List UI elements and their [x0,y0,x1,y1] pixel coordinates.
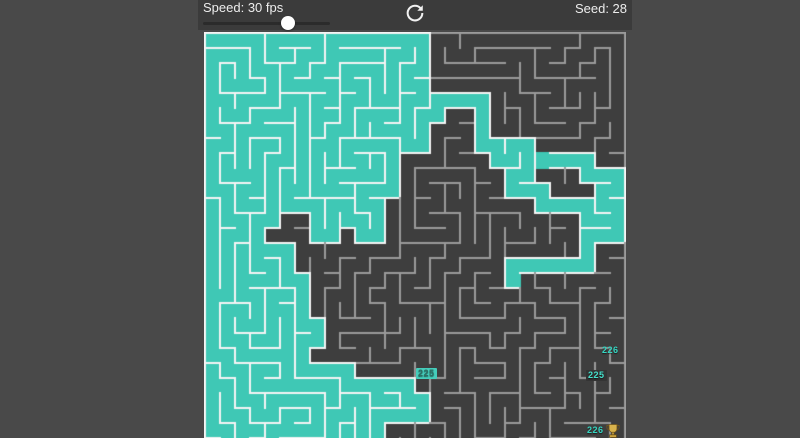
slider-track[interactable] [203,22,330,25]
refresh-button[interactable] [404,2,426,24]
speed-slider[interactable] [203,16,330,30]
distance-label: 226 [585,425,606,436]
distance-label: 226 [600,345,621,356]
seed-label: Seed: 28 [575,1,627,16]
maze-app: Speed: 30 fps Seed: 28 226 225 2 [198,0,632,438]
speed-label: Speed: 30 fps [203,0,343,15]
seed-display: Seed: 28 [487,0,627,18]
trophy-icon [605,423,621,438]
distance-label: 225 [586,370,607,381]
toolbar: Speed: 30 fps Seed: 28 [198,0,632,30]
refresh-icon [404,12,426,27]
speed-control: Speed: 30 fps [203,0,343,30]
maze-viewport: 226 225 225 226 [204,32,626,438]
maze-canvas [204,32,626,438]
slider-thumb[interactable] [281,16,295,30]
toolbar-center [343,0,487,24]
distance-label: 225 [416,368,437,379]
